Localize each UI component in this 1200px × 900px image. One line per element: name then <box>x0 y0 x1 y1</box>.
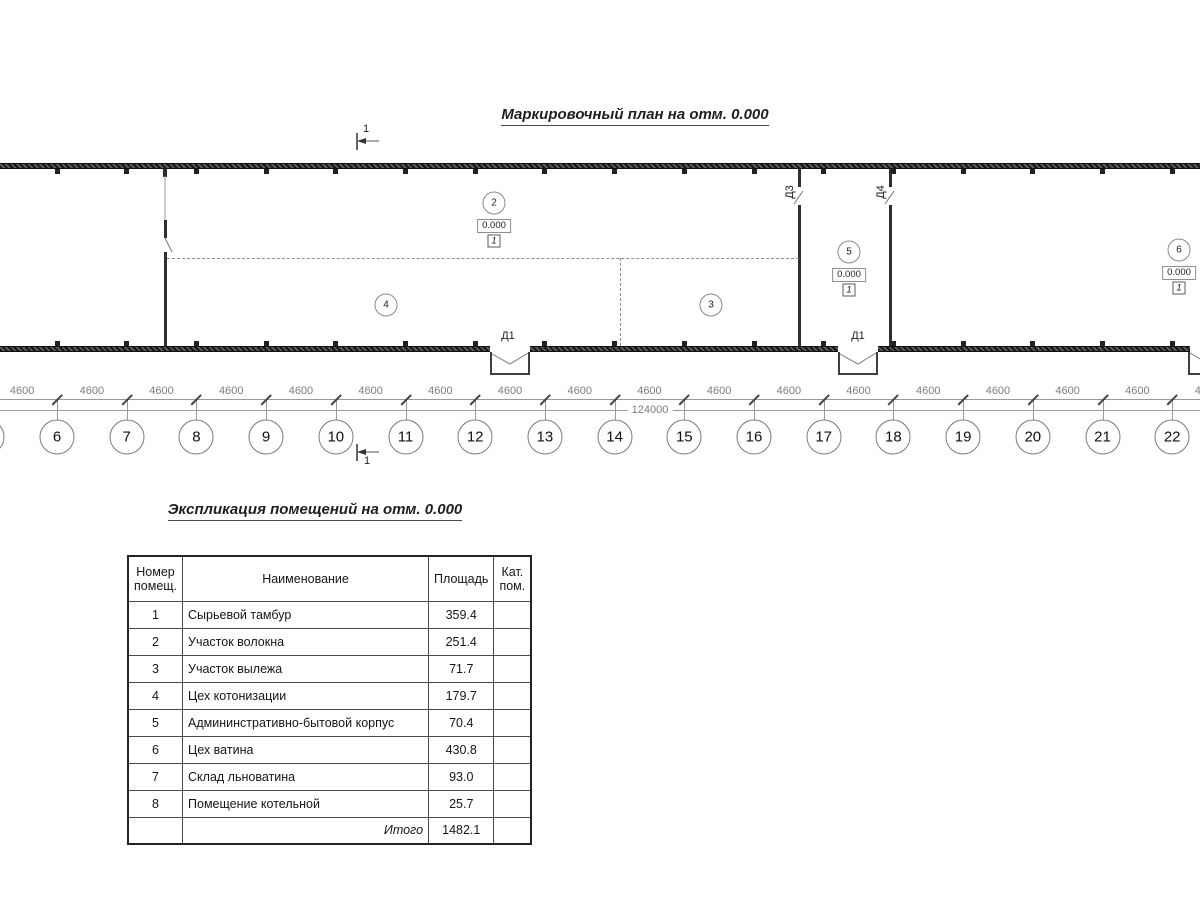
grid-extension-line <box>824 399 825 421</box>
dimension-segment-text: 4600 <box>498 385 522 397</box>
grid-extension-line <box>963 399 964 421</box>
wall-interior-1-upper <box>164 220 167 238</box>
door-label: Д1 <box>851 330 865 342</box>
elevation-marker: 0.000 <box>832 268 866 282</box>
drawing-sheet: Маркировочный план на отм. 0.000 124000 <box>0 0 1200 900</box>
vestibule-2 <box>838 352 878 375</box>
dimension-segment-text: 4600 <box>428 385 452 397</box>
cell-room-number: 7 <box>128 763 183 790</box>
cell-category <box>494 628 531 655</box>
grid-bubble: 19 <box>946 420 981 455</box>
pilaster-bottom <box>194 341 199 346</box>
room-schedule-table: Номер помещ. Наименование Площадь Кат. п… <box>127 555 532 845</box>
cell-name: Цех ватина <box>183 736 429 763</box>
cell-name: Цех котонизации <box>183 682 429 709</box>
grid-bubble: 14 <box>597 420 632 455</box>
pilaster-bottom <box>333 341 338 346</box>
pilaster-bottom <box>1170 341 1175 346</box>
cell-area: 70.4 <box>429 709 494 736</box>
cell-category <box>494 736 531 763</box>
dimension-segment-text: 4600 <box>637 385 661 397</box>
total-empty-num <box>128 817 183 844</box>
vestibule-1 <box>490 352 530 375</box>
grid-extension-line <box>127 399 128 421</box>
grid-bubble: 10 <box>318 420 353 455</box>
dimension-line-overall <box>0 410 1200 411</box>
category-marker: 1 <box>488 235 501 248</box>
table-row: 8Помещение котельной25.7 <box>128 790 531 817</box>
pilaster-bottom <box>961 341 966 346</box>
dimension-segment-text: 4600 <box>10 385 34 397</box>
pilaster-top <box>1030 169 1035 174</box>
schedule-title: Экспликация помещений на отм. 0.000 <box>130 501 500 521</box>
pilaster-top <box>1170 169 1175 174</box>
dimension-segment-text: 4600 <box>1195 385 1200 397</box>
cell-room-number: 8 <box>128 790 183 817</box>
wall-interior-3 <box>889 205 892 346</box>
cell-room-number: 6 <box>128 736 183 763</box>
grid-bubble: 15 <box>667 420 702 455</box>
grid-extension-line <box>545 399 546 421</box>
grid-bubble: 11 <box>388 420 423 455</box>
grid-bubble: 21 <box>1085 420 1120 455</box>
cell-area: 71.7 <box>429 655 494 682</box>
table-row: 5Админинстративно-бытовой корпус70.4 <box>128 709 531 736</box>
table-row: 7Склад льноватина93.0 <box>128 763 531 790</box>
dimension-segment-text: 4600 <box>289 385 313 397</box>
grid-bubble: 7 <box>109 420 144 455</box>
room-number-marker: 2 <box>483 192 506 215</box>
pilaster-top <box>891 169 896 174</box>
grid-extension-line <box>266 399 267 421</box>
door-label: Д4 <box>875 185 887 199</box>
header-area: Площадь <box>429 556 494 601</box>
grid-bubble-clipped <box>0 420 5 455</box>
pilaster-top <box>473 169 478 174</box>
pilaster-top <box>961 169 966 174</box>
header-name: Наименование <box>183 556 429 601</box>
pilaster-bottom <box>1030 341 1035 346</box>
dimension-segment-text: 4600 <box>1055 385 1079 397</box>
category-marker: 1 <box>843 284 856 297</box>
wall-interior-2 <box>798 205 801 346</box>
dimension-segment-text: 4600 <box>986 385 1010 397</box>
dimension-segment-text: 4600 <box>916 385 940 397</box>
dimension-segment-text: 4600 <box>149 385 173 397</box>
dimension-line-segments <box>0 399 1200 400</box>
pilaster-top <box>612 169 617 174</box>
grid-extension-line <box>57 399 58 421</box>
dimension-segment-text: 4600 <box>568 385 592 397</box>
grid-bubble: 12 <box>458 420 493 455</box>
grid-bubble: 20 <box>1015 420 1050 455</box>
room-number-marker: 6 <box>1168 239 1191 262</box>
table-header-row: Номер помещ. Наименование Площадь Кат. п… <box>128 556 531 601</box>
cell-category <box>494 601 531 628</box>
table-row: 4Цех котонизации179.7 <box>128 682 531 709</box>
grid-extension-line <box>1033 399 1034 421</box>
cell-name: Сырьевой тамбур <box>183 601 429 628</box>
section-arrow-top <box>357 138 366 144</box>
grid-bubble: 22 <box>1155 420 1190 455</box>
grid-bubble: 16 <box>737 420 772 455</box>
cell-category <box>494 763 531 790</box>
pilaster-top <box>403 169 408 174</box>
vestibule-3 <box>1188 352 1200 375</box>
pilaster-top <box>752 169 757 174</box>
wall-interior-1-stub <box>163 169 167 177</box>
section-label-top: 1 <box>363 123 369 135</box>
dimension-segment-text: 4600 <box>777 385 801 397</box>
cell-category <box>494 682 531 709</box>
cell-area: 93.0 <box>429 763 494 790</box>
cell-room-number: 3 <box>128 655 183 682</box>
plan-title: Маркировочный план на отм. 0.000 <box>440 106 830 126</box>
pilaster-top <box>55 169 60 174</box>
pilaster-bottom <box>403 341 408 346</box>
grid-bubble: 18 <box>876 420 911 455</box>
table-row: 3Участок вылежа71.7 <box>128 655 531 682</box>
grid-bubble: 9 <box>249 420 284 455</box>
cell-area: 430.8 <box>429 736 494 763</box>
dimension-segment-text: 4600 <box>358 385 382 397</box>
cell-area: 251.4 <box>429 628 494 655</box>
pilaster-top <box>264 169 269 174</box>
grid-bubble: 17 <box>806 420 841 455</box>
wall-interior-1-lower <box>164 252 167 346</box>
wall-bottom-seg3 <box>878 346 1190 352</box>
pilaster-bottom <box>612 341 617 346</box>
pilaster-bottom <box>752 341 757 346</box>
grid-extension-line <box>893 399 894 421</box>
pilaster-bottom <box>1100 341 1105 346</box>
cell-name: Помещение котельной <box>183 790 429 817</box>
grid-bubble: 13 <box>527 420 562 455</box>
table-row: 2Участок волокна251.4 <box>128 628 531 655</box>
grid-extension-line <box>754 399 755 421</box>
door-swing <box>165 238 172 252</box>
cell-category <box>494 709 531 736</box>
cell-name: Админинстративно-бытовой корпус <box>183 709 429 736</box>
pilaster-bottom <box>682 341 687 346</box>
header-room-number: Номер помещ. <box>128 556 183 601</box>
wall-top <box>0 163 1200 169</box>
cell-area: 179.7 <box>429 682 494 709</box>
pilaster-bottom <box>55 341 60 346</box>
cell-room-number: 1 <box>128 601 183 628</box>
pilaster-bottom <box>821 341 826 346</box>
total-empty-cat <box>494 817 531 844</box>
zone-dashed-horizontal <box>167 258 799 259</box>
pilaster-bottom <box>473 341 478 346</box>
cell-category <box>494 655 531 682</box>
grid-bubble: 6 <box>40 420 75 455</box>
door-label: Д3 <box>784 185 796 199</box>
pilaster-bottom <box>542 341 547 346</box>
table-row: 1Сырьевой тамбур359.4 <box>128 601 531 628</box>
dimension-segment-text: 4600 <box>219 385 243 397</box>
cell-name: Склад льноватина <box>183 763 429 790</box>
cell-room-number: 5 <box>128 709 183 736</box>
pilaster-top <box>194 169 199 174</box>
total-label: Итого <box>183 817 429 844</box>
dimension-segment-text: 4600 <box>707 385 731 397</box>
pilaster-bottom <box>124 341 129 346</box>
grid-bubble: 8 <box>179 420 214 455</box>
cell-name: Участок вылежа <box>183 655 429 682</box>
door-label: Д1 <box>501 330 515 342</box>
dimension-segment-text: 4600 <box>1125 385 1149 397</box>
pilaster-bottom <box>891 341 896 346</box>
dimension-segment-text: 4600 <box>80 385 104 397</box>
pilaster-bottom <box>264 341 269 346</box>
pilaster-top <box>124 169 129 174</box>
pilaster-top <box>542 169 547 174</box>
grid-extension-line <box>684 399 685 421</box>
room-number-marker: 3 <box>700 294 723 317</box>
pilaster-top <box>821 169 826 174</box>
elevation-marker: 0.000 <box>1162 266 1196 280</box>
grid-extension-line <box>406 399 407 421</box>
cell-area: 25.7 <box>429 790 494 817</box>
grid-extension-line <box>475 399 476 421</box>
zone-dashed-vertical <box>620 258 621 346</box>
cell-area: 359.4 <box>429 601 494 628</box>
cell-name: Участок волокна <box>183 628 429 655</box>
dimension-segment-text: 4600 <box>846 385 870 397</box>
cell-room-number: 2 <box>128 628 183 655</box>
wall-interior-2-stub <box>798 169 801 187</box>
header-category: Кат. пом. <box>494 556 531 601</box>
overall-dimension-text: 124000 <box>628 404 673 416</box>
section-label-bottom: 1 <box>364 455 370 467</box>
grid-extension-line <box>196 399 197 421</box>
total-area: 1482.1 <box>429 817 494 844</box>
wall-bottom-seg2 <box>530 346 838 352</box>
room-number-marker: 4 <box>375 294 398 317</box>
pilaster-top <box>333 169 338 174</box>
pilaster-top <box>682 169 687 174</box>
room-number-marker: 5 <box>838 241 861 264</box>
cell-category <box>494 790 531 817</box>
cell-room-number: 4 <box>128 682 183 709</box>
elevation-marker: 0.000 <box>477 219 511 233</box>
pilaster-top <box>1100 169 1105 174</box>
table-total-row: Итого 1482.1 <box>128 817 531 844</box>
grid-extension-line <box>1103 399 1104 421</box>
grid-extension-line <box>615 399 616 421</box>
table-row: 6Цех ватина430.8 <box>128 736 531 763</box>
category-marker: 1 <box>1173 282 1186 295</box>
grid-extension-line <box>1172 399 1173 421</box>
grid-extension-line <box>336 399 337 421</box>
wall-bottom-seg1 <box>0 346 490 352</box>
